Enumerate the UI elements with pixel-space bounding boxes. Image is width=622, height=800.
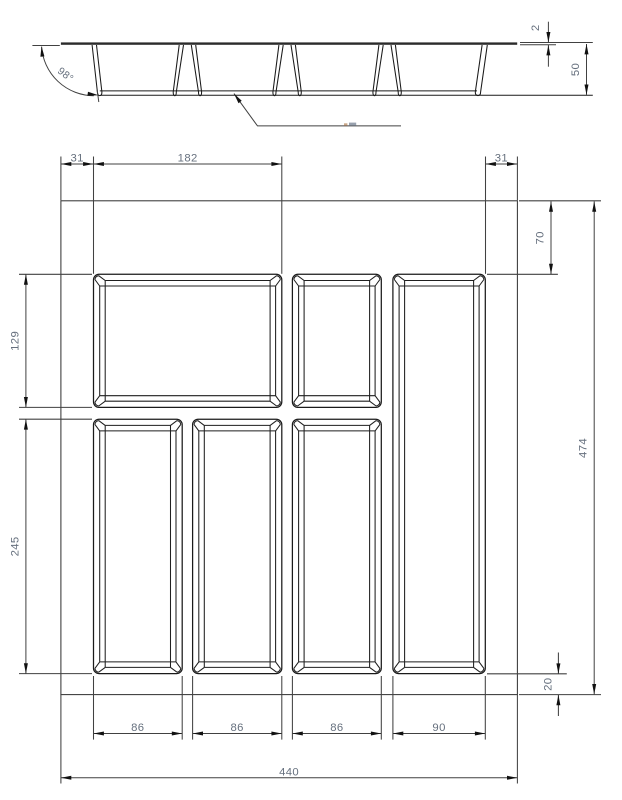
- svg-text:31: 31: [71, 153, 84, 165]
- svg-text:90: 90: [432, 722, 445, 734]
- svg-text:2: 2: [530, 24, 542, 31]
- svg-text:86: 86: [231, 722, 244, 734]
- svg-text:31: 31: [495, 153, 508, 165]
- svg-text:129: 129: [9, 331, 21, 351]
- svg-text:182: 182: [178, 153, 198, 165]
- svg-text:70: 70: [534, 231, 546, 244]
- svg-text:20: 20: [542, 678, 554, 691]
- svg-text:474: 474: [578, 438, 590, 458]
- svg-text:86: 86: [131, 722, 144, 734]
- svg-text:245: 245: [9, 536, 21, 556]
- svg-text:50: 50: [570, 63, 582, 76]
- svg-text:86: 86: [330, 722, 343, 734]
- svg-text:440: 440: [279, 766, 299, 778]
